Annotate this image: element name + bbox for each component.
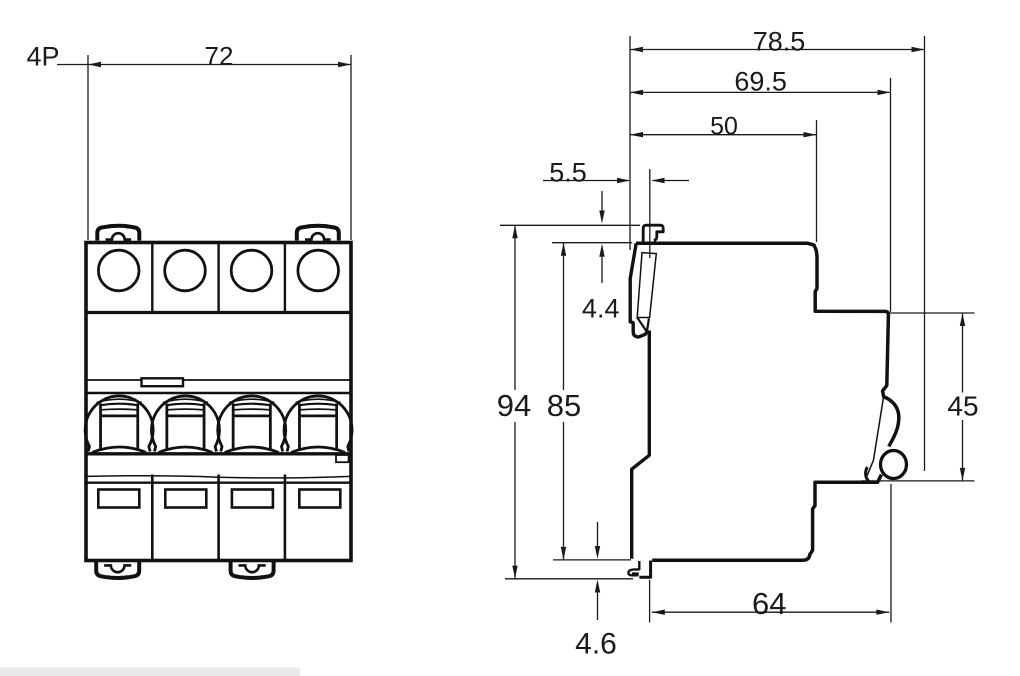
svg-text:85: 85 (547, 388, 581, 423)
svg-text:4.4: 4.4 (582, 294, 620, 324)
svg-text:72: 72 (205, 41, 234, 71)
svg-text:94: 94 (497, 388, 531, 423)
svg-text:50: 50 (710, 113, 738, 141)
svg-text:4P: 4P (27, 42, 60, 72)
svg-text:4.6: 4.6 (575, 628, 617, 661)
svg-text:78.5: 78.5 (753, 27, 806, 57)
svg-text:69.5: 69.5 (734, 67, 787, 97)
svg-text:64: 64 (752, 586, 786, 621)
svg-text:5.5: 5.5 (549, 158, 587, 188)
svg-text:45: 45 (947, 391, 978, 422)
